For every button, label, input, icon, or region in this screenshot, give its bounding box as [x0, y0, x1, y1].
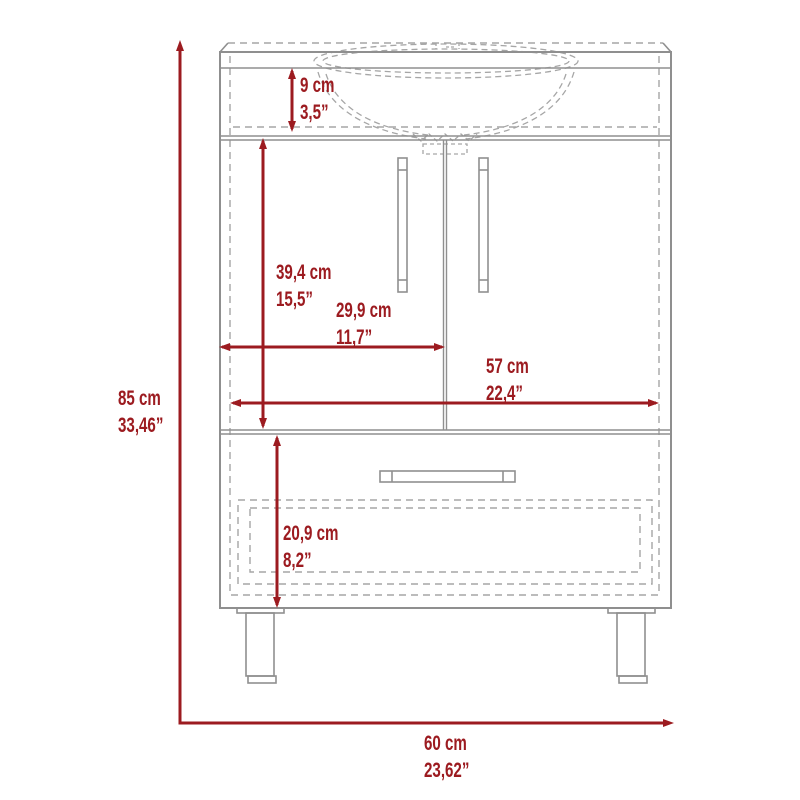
door-divider [444, 140, 447, 430]
dimension-label-sink-apron-height: 9 cm 3,5” [300, 72, 334, 126]
value-cm: 39,4 cm [276, 259, 331, 286]
value-cm: 57 cm [486, 353, 529, 380]
value-inch: 23,62” [424, 757, 469, 784]
value-cm: 9 cm [300, 72, 334, 99]
value-inch: 8,2” [283, 547, 338, 574]
overall-dimension-line [180, 44, 670, 723]
value-inch: 33,46” [118, 412, 163, 439]
dimension-lines [176, 40, 674, 727]
left-door-handle [398, 158, 407, 292]
dimension-label-overall-height: 85 cm 33,46” [118, 385, 163, 439]
left-leg [237, 608, 284, 683]
drawer-handle [380, 471, 515, 482]
value-inch: 11,7” [336, 324, 391, 351]
right-door-handle [479, 158, 488, 292]
dimension-label-door-width: 29,9 cm 11,7” [336, 297, 391, 351]
value-cm: 20,9 cm [283, 520, 338, 547]
dimension-label-interior-width: 57 cm 22,4” [486, 353, 529, 407]
dimension-diagram: 9 cm 3,5” 39,4 cm 15,5” 29,9 cm 11,7” 57… [0, 0, 800, 800]
sink-outline [314, 43, 578, 154]
dimension-label-overall-width: 60 cm 23,62” [424, 730, 469, 784]
dimension-label-drawer-height: 20,9 cm 8,2” [283, 520, 338, 574]
value-cm: 85 cm [118, 385, 163, 412]
cabinet-outline [220, 43, 671, 683]
value-cm: 60 cm [424, 730, 469, 757]
right-leg [608, 608, 655, 683]
value-inch: 22,4” [486, 380, 529, 407]
value-inch: 15,5” [276, 286, 331, 313]
dimension-label-door-height: 39,4 cm 15,5” [276, 259, 331, 313]
value-cm: 29,9 cm [336, 297, 391, 324]
value-inch: 3,5” [300, 99, 334, 126]
